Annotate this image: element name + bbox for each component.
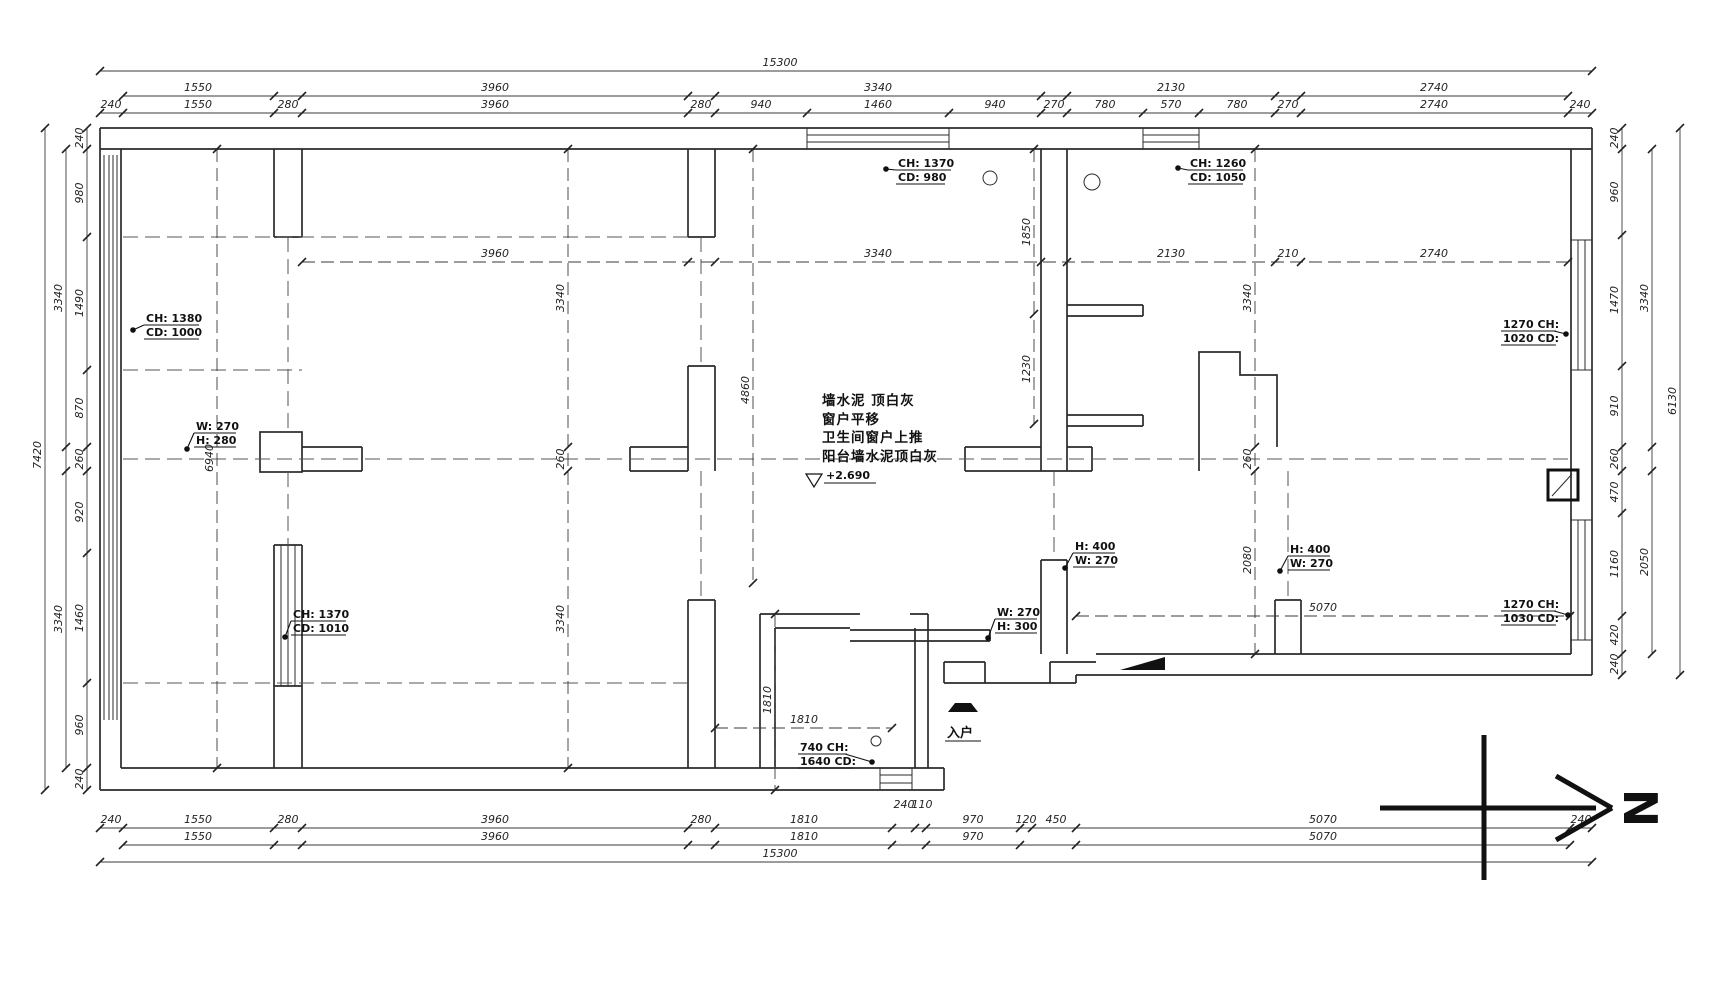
note-line-4: 阳台墙水泥顶白灰 [822,448,938,467]
leader-line [187,433,194,449]
leader-label-line: CD: 1050 [1190,171,1246,184]
entrance-label: 入户 [947,725,973,741]
dim-tick [749,579,757,587]
dim-label: 5070 [1309,601,1337,614]
dim-label: 1550 [184,98,212,111]
dim-label: 1810 [761,686,774,714]
entry-ramp [1120,657,1165,670]
dim-label: 240 [101,98,122,111]
dim-label: 2740 [1420,81,1448,94]
dim-label: 870 [73,398,86,419]
dim-label: 1810 [790,830,818,843]
dim-label: 6130 [1666,387,1679,415]
dim-label: 2050 [1638,548,1651,576]
dim-label: 3960 [481,98,509,111]
dim-label: 110 [912,798,933,811]
dim-label: 420 [1608,625,1621,646]
dim-label: 3340 [554,284,567,312]
leader-label-line: CD: 1010 [293,622,349,635]
leader-label-line: 1020 CD: [1503,332,1559,345]
leader-label-line: CH: 1370 [898,157,954,170]
entrance-arrow-icon [948,703,978,712]
dim-label: 280 [278,813,299,826]
north-arrow: N [1380,735,1667,880]
dim-label: 1230 [1020,355,1033,383]
dim-label: 240 [101,813,122,826]
dim-label: 910 [1608,396,1621,417]
dim-label: 1550 [184,813,212,826]
leader-label-line: 740 CH: [800,741,848,754]
dim-label: 960 [73,715,86,736]
dim-label: 1460 [73,604,86,632]
dim-label: 210 [1278,247,1299,260]
floor-plan-page: 1530015503960334021302740240155028039602… [0,0,1711,1000]
window-symbol [1548,470,1578,500]
dim-label: 2130 [1157,247,1185,260]
dim-label: 3340 [864,81,892,94]
leader-label-line: W: 270 [997,606,1040,619]
dim-label: 2130 [1157,81,1185,94]
leader-label-line: CD: 1000 [146,326,202,339]
dim-label: 260 [1608,449,1621,470]
dim-label: 240 [73,128,86,149]
dim-label: 3340 [864,247,892,260]
leader-label-line: 1270 CH: [1503,318,1559,331]
dim-label: 3960 [481,81,509,94]
leader-label-line: H: 280 [196,434,237,447]
dim-label: 970 [963,813,984,826]
dim-label: 260 [554,449,567,470]
dim-label: 780 [1095,98,1116,111]
dim-label: 270 [1044,98,1065,111]
dim-label: 3340 [52,605,65,633]
dim-label: 1470 [1608,286,1621,314]
dim-label: 2080 [1241,546,1254,574]
notes-layer: +2.690入户 [806,469,981,741]
dim-label: 1550 [184,81,212,94]
dim-label: 470 [1608,482,1621,503]
dim-label: 120 [1016,813,1037,826]
leader-label-line: 1270 CH: [1503,598,1559,611]
renovation-note: 墙水泥 顶白灰 窗户平移 卫生间窗户上推 阳台墙水泥顶白灰 [822,392,938,466]
dim-label: 1160 [1608,550,1621,578]
dim-label: 280 [278,98,299,111]
leader-label-line: H: 400 [1290,543,1331,556]
dim-label: 980 [73,183,86,204]
dim-label: 450 [1046,813,1067,826]
dim-label: 240 [1608,654,1621,675]
leader-line [133,325,144,330]
dim-label: 240 [1570,98,1591,111]
note-line-3: 卫生间窗户上推 [822,429,938,448]
dim-label: 2740 [1420,247,1448,260]
dim-label: 780 [1227,98,1248,111]
note-line-2: 窗户平移 [822,411,938,430]
north-label: N [1613,789,1667,828]
dim-label: 3960 [481,247,509,260]
leader-label-line: W: 270 [1075,554,1118,567]
leader-label-line: H: 300 [997,620,1038,633]
dim-label: 280 [691,813,712,826]
level-triangle-icon [806,474,822,487]
dim-label: 2740 [1420,98,1448,111]
dim-label: 3960 [481,813,509,826]
leader-label-line: CH: 1380 [146,312,202,325]
dim-label: 3960 [481,830,509,843]
dim-label: 260 [1241,449,1254,470]
dim-label: 3340 [554,605,567,633]
dim-label: 960 [1608,182,1621,203]
dim-label: 3340 [1638,284,1651,312]
dim-label: 270 [1278,98,1299,111]
leader-label-line: 1640 CD: [800,755,856,768]
leader-label-line: CD: 980 [898,171,947,184]
dim-label: 240 [1608,128,1621,149]
dim-label: 970 [963,830,984,843]
leader-label-line: CH: 1260 [1190,157,1246,170]
leader-label-line: H: 400 [1075,540,1116,553]
dim-label: 4860 [739,376,752,404]
dim-label: 5070 [1309,830,1337,843]
leader-line [1280,556,1288,571]
dim-label: 1460 [864,98,892,111]
dim-label: 15300 [763,56,798,69]
dim-label: 1850 [1020,218,1033,246]
dim-label: 940 [751,98,772,111]
dim-label: 1810 [790,713,818,726]
dim-label: 920 [73,502,86,523]
level-marker-label: +2.690 [826,469,870,482]
dim-label: 570 [1161,98,1182,111]
leader-label-line: CH: 1370 [293,608,349,621]
leader-label-line: 1030 CD: [1503,612,1559,625]
dim-label: 1490 [73,289,86,317]
note-line-1: 墙水泥 顶白灰 [822,392,938,411]
dim-label: 6940 [203,444,216,472]
floor-plan-canvas: 1530015503960334021302740240155028039602… [0,0,1711,1000]
dim-label: 7420 [31,441,44,469]
dim-label: 940 [985,98,1006,111]
dim-label: 280 [691,98,712,111]
dim-label: 5070 [1309,813,1337,826]
dim-label: 260 [73,449,86,470]
dim-label: 3340 [52,284,65,312]
dim-label: 240 [73,769,86,790]
leader-label-line: W: 270 [1290,557,1333,570]
dim-label: 1550 [184,830,212,843]
dim-label: 1810 [790,813,818,826]
leader-line [988,619,995,638]
dim-label: 15300 [763,847,798,860]
dim-label: 3340 [1241,284,1254,312]
leader-label-line: W: 270 [196,420,239,433]
